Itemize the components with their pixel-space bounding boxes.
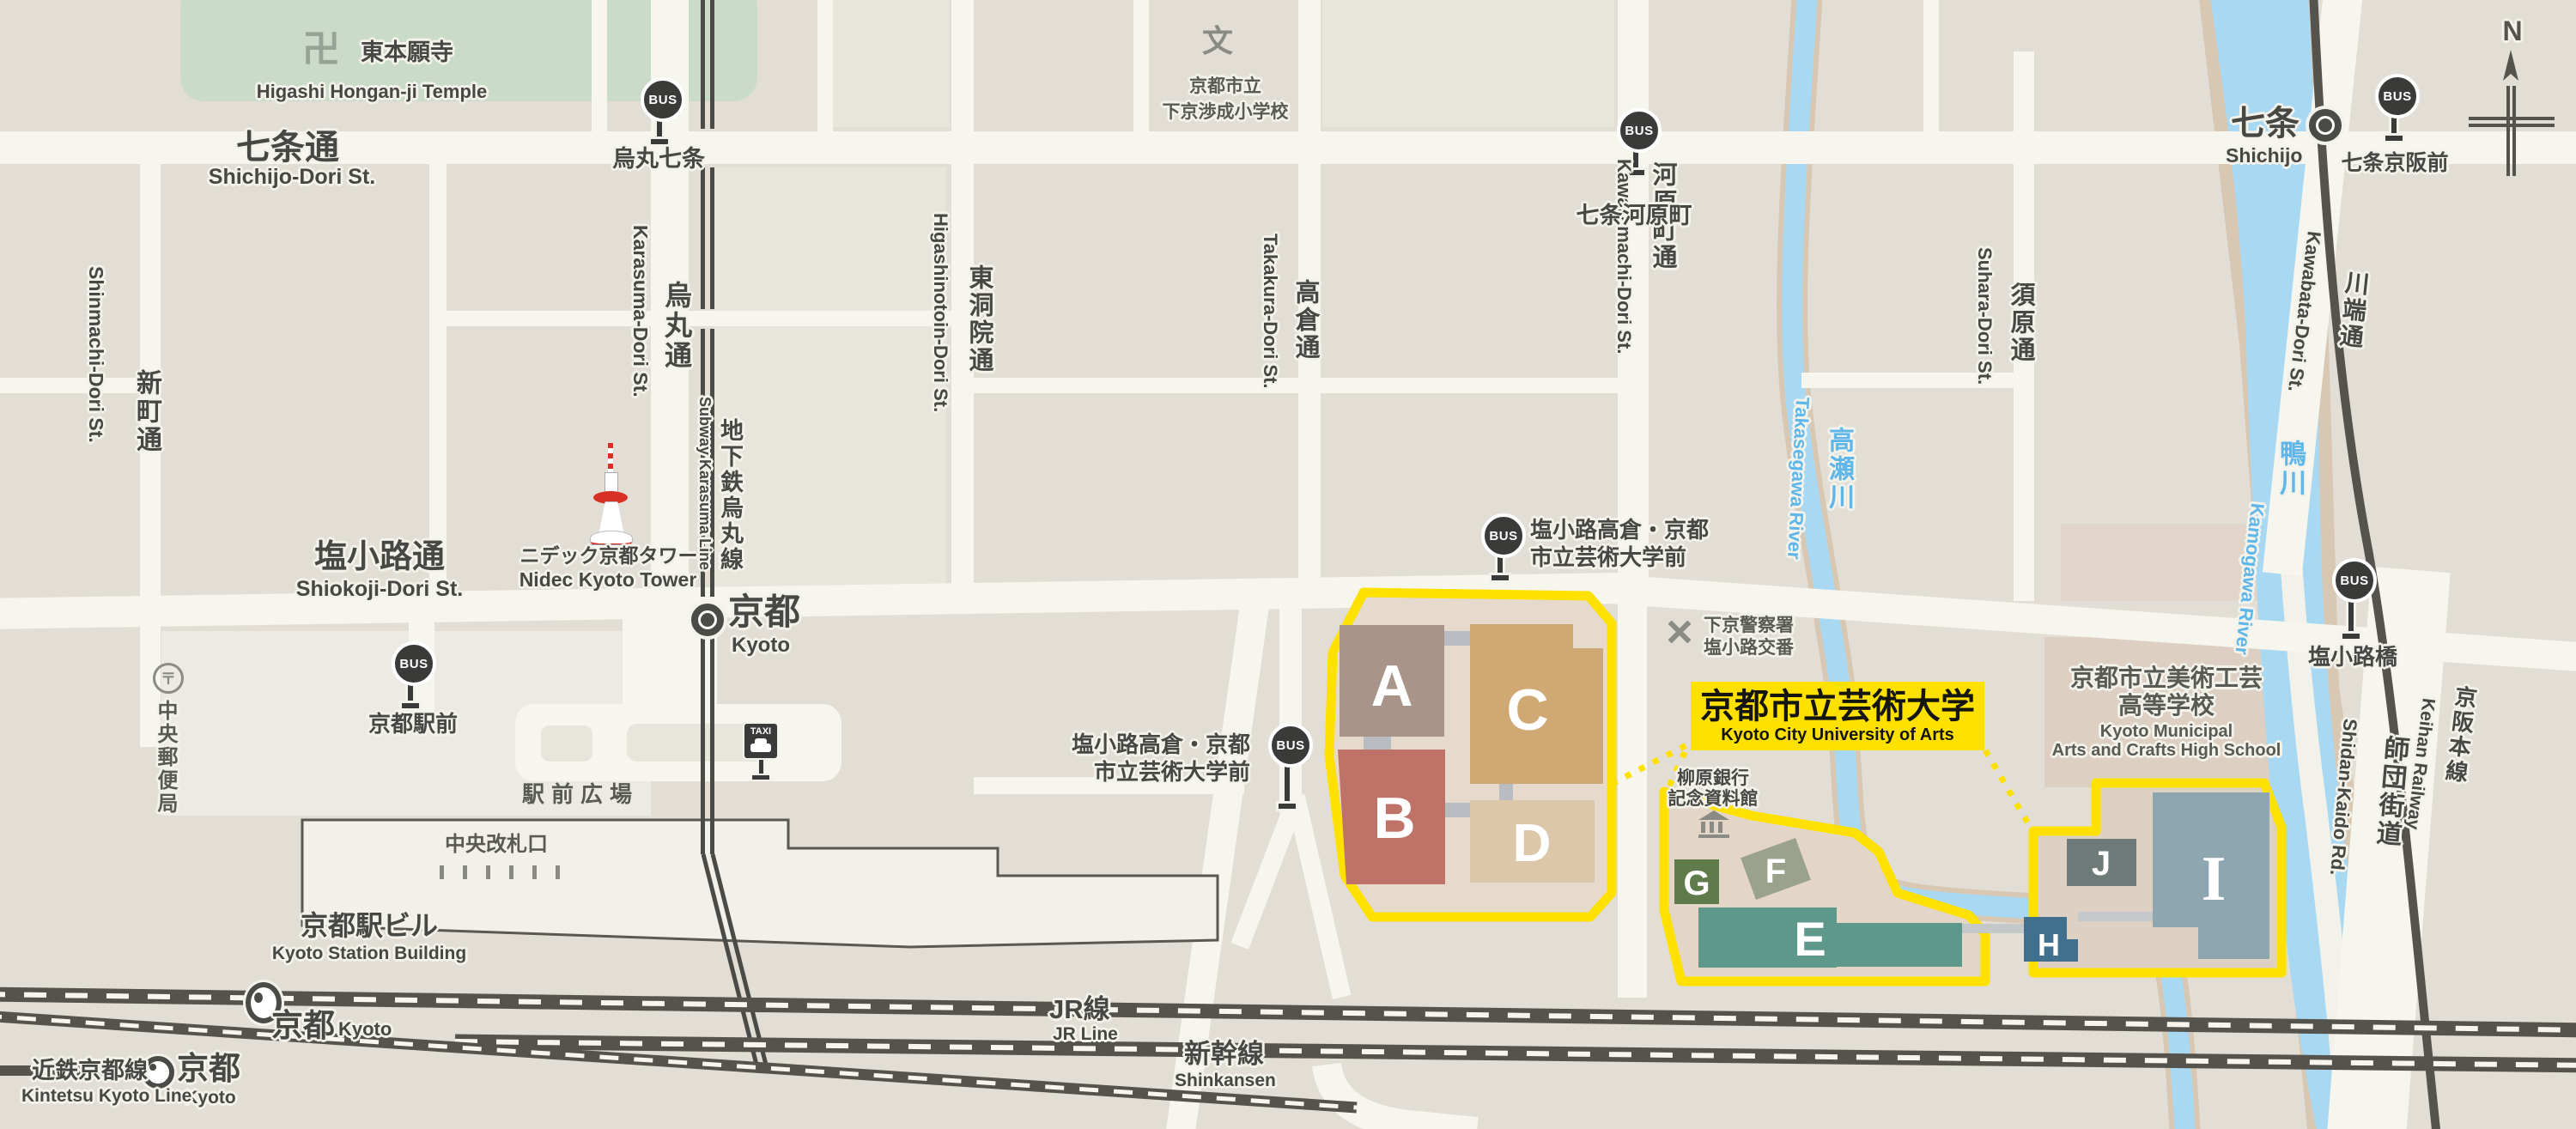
bus-icon: BUS bbox=[1268, 723, 1313, 768]
station-kyoto-subway bbox=[691, 604, 724, 636]
building-j-letter: J bbox=[2092, 845, 2111, 883]
street-shichijo-en: Shichijo-Dori St. bbox=[209, 167, 375, 188]
school-icon: 文 bbox=[1202, 26, 1233, 57]
bus-label-shichijo-kawaramachi: 七条河原町 bbox=[1577, 204, 1692, 228]
street-suhara-en: Suhara-Dori St. bbox=[1975, 247, 1994, 385]
station-kyoto-jr-ja: 京都 bbox=[271, 1010, 335, 1041]
taxi-stand-icon: TAXI bbox=[744, 724, 777, 780]
kyoto-access-map: A C B D G F E J I H bbox=[0, 0, 2576, 1129]
station-kyoto-subway-en: Kyoto bbox=[732, 635, 790, 656]
jr-line-ja: JR線 bbox=[1049, 996, 1110, 1023]
bus-label-kyoto-ekimae: 京都駅前 bbox=[368, 713, 458, 735]
bus-label-shiokoji-takakura-south-1: 塩小路高倉・京都 bbox=[1072, 733, 1250, 756]
university-ja: 京都市立芸術大学 bbox=[1700, 689, 1975, 724]
bus-icon: BUS bbox=[392, 641, 436, 686]
police-box-icon bbox=[1664, 616, 1695, 647]
elementary-school-ja2: 下京渉成小学校 bbox=[1163, 103, 1289, 121]
river-kamogawa-ja: 鴨川 bbox=[2277, 440, 2304, 498]
shinkansen-ja: 新幹線 bbox=[1184, 1041, 1264, 1067]
street-suhara-ja: 須原通 bbox=[2008, 282, 2032, 364]
highschool-en1: Kyoto Municipal bbox=[2100, 723, 2233, 740]
station-building-en: Kyoto Station Building bbox=[272, 944, 466, 962]
street-shichijo-ja: 七条通 bbox=[236, 131, 339, 165]
building-c-letter: C bbox=[1506, 677, 1548, 743]
subway-line-en: Subway Karasuma Line bbox=[697, 397, 713, 570]
building-e-letter: E bbox=[1794, 912, 1826, 966]
station-kyoto-kintetsu-ja: 京都 bbox=[177, 1053, 240, 1084]
street-kawaramachi-en: Kawaramachi-Dori St. bbox=[1614, 159, 1633, 354]
museum-icon bbox=[1698, 810, 1729, 838]
central-gate-label: 中央改札口 bbox=[445, 835, 548, 855]
street-karasuma-ja: 烏丸通 bbox=[663, 281, 690, 371]
post-office-label: 中央郵便局 bbox=[155, 700, 175, 816]
building-b-letter: B bbox=[1373, 786, 1415, 851]
temple-icon: 卍 bbox=[302, 31, 340, 69]
kintetsu-en: Kintetsu Kyoto Line bbox=[21, 1087, 191, 1105]
taxi-badge: TAXI bbox=[744, 726, 777, 737]
bus-icon: BUS bbox=[641, 77, 685, 122]
kyoto-tower-icon bbox=[584, 443, 639, 555]
post-office-icon: 〒 bbox=[153, 663, 184, 694]
subway-line-ja: 地下鉄烏丸線 bbox=[718, 418, 741, 573]
station-kyoto-jr-en: Kyoto bbox=[338, 1020, 392, 1039]
plaza-label: 駅前広場 bbox=[522, 783, 639, 805]
museum-label-1: 柳原銀行 bbox=[1677, 769, 1749, 787]
street-karasuma-en: Karasuma-Dori St. bbox=[630, 225, 650, 398]
building-e bbox=[1837, 923, 1962, 967]
compass-n: N bbox=[2502, 17, 2522, 45]
street-shiokoji-en: Shiokoji-Dori St. bbox=[296, 579, 463, 600]
compass-icon bbox=[2469, 86, 2555, 176]
bus-label-karasuma-shichijo: 烏丸七条 bbox=[612, 148, 705, 171]
bus-label-shiokojibashi: 塩小路橋 bbox=[2308, 646, 2397, 668]
building-a-letter: A bbox=[1370, 653, 1413, 719]
station-building-ja: 京都駅ビル bbox=[301, 912, 438, 939]
station-kyoto-subway-ja: 京都 bbox=[728, 594, 800, 630]
building-h-letter: H bbox=[2038, 927, 2060, 962]
museum-label-2: 記念資料館 bbox=[1668, 790, 1759, 808]
university-en: Kyoto City University of Arts bbox=[1721, 726, 1954, 744]
street-shinmachi-ja: 新町通 bbox=[133, 369, 159, 454]
building-g-letter: G bbox=[1683, 865, 1710, 902]
street-takakura-ja: 高倉通 bbox=[1292, 279, 1317, 361]
building-d-letter: D bbox=[1513, 814, 1552, 873]
street-higashinotoin-ja: 東洞院通 bbox=[966, 264, 991, 374]
university-label-box: 京都市立芸術大学 Kyoto City University of Arts bbox=[1691, 682, 1984, 750]
tower-name-en: Nidec Kyoto Tower bbox=[519, 570, 697, 590]
bus-icon: BUS bbox=[1481, 513, 1526, 558]
building-f-letter: F bbox=[1765, 853, 1786, 890]
compass-arrow bbox=[2503, 50, 2518, 81]
highschool-ja2: 高等学校 bbox=[2118, 694, 2215, 718]
temple-name-ja: 東本願寺 bbox=[361, 41, 453, 64]
bus-icon: BUS bbox=[2375, 74, 2420, 118]
street-higashinotoin-en: Higashinotoin-Dori St. bbox=[931, 213, 950, 412]
kintetsu-ja: 近鉄京都線 bbox=[32, 1059, 148, 1083]
station-shichijo-ja: 七条 bbox=[2231, 106, 2300, 141]
building-i-letter: I bbox=[2202, 844, 2227, 914]
police-label-1: 下京警察署 bbox=[1704, 616, 1794, 634]
shinkansen-en: Shinkansen bbox=[1175, 1071, 1276, 1090]
street-shiokoji-ja: 塩小路通 bbox=[314, 541, 445, 574]
elementary-school-ja1: 京都市立 bbox=[1189, 77, 1261, 95]
jr-line-en: JR Line bbox=[1053, 1025, 1118, 1043]
highschool-ja1: 京都市立美術工芸 bbox=[2070, 666, 2263, 690]
temple-name-en: Higashi Hongan-ji Temple bbox=[257, 82, 488, 101]
bus-label-shiokoji-takakura-south-2: 市立芸術大学前 bbox=[1094, 761, 1250, 783]
station-shichijo bbox=[2309, 109, 2342, 142]
police-label-2: 塩小路交番 bbox=[1704, 639, 1794, 657]
bus-icon: BUS bbox=[2332, 558, 2377, 603]
bus-icon: BUS bbox=[1617, 108, 1662, 153]
bus-label-shiokoji-takakura-north-2: 市立芸術大学前 bbox=[1530, 546, 1686, 568]
river-takasegawa-ja: 高瀬川 bbox=[1826, 427, 1851, 512]
bus-label-shichijo-keihan-mae: 七条京阪前 bbox=[2341, 153, 2448, 174]
highschool-en2: Arts and Crafts High School bbox=[2052, 742, 2281, 759]
street-shinmachi-en: Shinmachi-Dori St. bbox=[86, 266, 106, 443]
station-shichijo-en: Shichijo bbox=[2226, 146, 2302, 166]
station-building-outline bbox=[302, 820, 1218, 947]
tower-name-ja: ニデック京都タワー bbox=[520, 546, 698, 566]
street-takakura-en: Takakura-Dori St. bbox=[1261, 234, 1279, 389]
station-kyoto-kintetsu-en: Kyoto bbox=[185, 1089, 236, 1107]
post-mark: 〒 bbox=[161, 667, 176, 689]
bus-label-shiokoji-takakura-north-1: 塩小路高倉・京都 bbox=[1530, 519, 1709, 541]
